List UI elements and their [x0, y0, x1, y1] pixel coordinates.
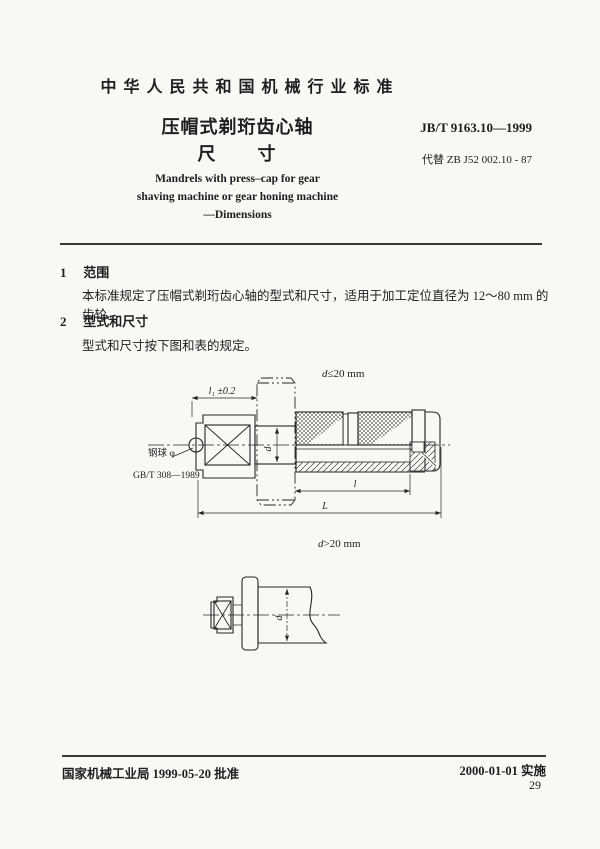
figure1-technical-drawing: l₁ ±0.2 d l L 钢球 φ GB/T 308—1989: [130, 365, 480, 545]
dim-d-label: d: [263, 446, 274, 452]
end-plug: [412, 442, 424, 452]
dimension-L: L: [198, 447, 441, 518]
workpiece-phantom: [257, 378, 295, 505]
scanned-standard-page: 中华人民共和国机械行业标准 压帽式剃珩齿心轴 尺 寸 JB/T 9163.10—…: [0, 0, 600, 849]
section2-title: 型式和尺寸: [83, 314, 148, 329]
org-title: 中华人民共和国机械行业标准: [50, 73, 450, 97]
standard-number: JB/T 9163.10—1999: [380, 120, 532, 136]
section2-heading: 2 型式和尺寸: [60, 311, 148, 330]
dim-l1-label: l₁ ±0.2: [209, 386, 236, 397]
mandrel-body: [296, 410, 440, 472]
dim-L-label: L: [321, 501, 328, 512]
section1-heading: 1 范围: [60, 262, 109, 281]
flange: [242, 577, 258, 650]
footer-implementation: 2000-01-01 实施: [340, 760, 546, 779]
press-cap: [196, 415, 255, 478]
section2-number: 2: [60, 314, 80, 330]
section1-number: 1: [60, 265, 80, 281]
section1-title: 范围: [83, 265, 109, 280]
doc-subtitle: 尺 寸: [95, 140, 380, 166]
english-title: Mandrels with press–cap for gear shaving…: [85, 170, 390, 224]
english-title-line1: Mandrels with press–cap for gear: [85, 170, 390, 188]
supersedes-note: 代替 ZB J52 002.10 - 87: [380, 151, 532, 167]
header-divider: [60, 243, 542, 245]
section-hatch-band: [296, 462, 410, 472]
footer-divider: [62, 755, 546, 757]
ball-label: 钢球 φ: [148, 447, 175, 459]
english-title-line3: —Dimensions: [85, 206, 390, 224]
dimension-l: l: [295, 474, 410, 495]
figure2-technical-drawing: d: [195, 560, 345, 670]
section2-body: 型式和尺寸按下图和表的规定。: [82, 335, 552, 354]
doc-title: 压帽式剃珩齿心轴: [95, 113, 380, 139]
section1-body: 本标准规定了压帽式剃珩齿心轴的型式和尺寸，适用于加工定位直径为 12～80 mm…: [82, 285, 552, 323]
english-title-line2: shaving machine or gear honing machine: [85, 188, 390, 206]
figure2-caption-text: >20 mm: [324, 538, 361, 550]
ball-standard-ref: GB/T 308—1989: [133, 471, 200, 481]
dim-d2-label: d: [274, 615, 285, 621]
dim-l-label: l: [354, 479, 357, 490]
figure2-caption: d>20 mm: [318, 538, 361, 550]
steel-ball-callout: 钢球 φ GB/T 308—1989: [133, 447, 200, 481]
footer-approval: 国家机械工业局 1999-05-20 批准: [62, 763, 239, 782]
page-number: 29: [340, 778, 541, 793]
dimension-l1: l₁ ±0.2: [192, 386, 257, 417]
